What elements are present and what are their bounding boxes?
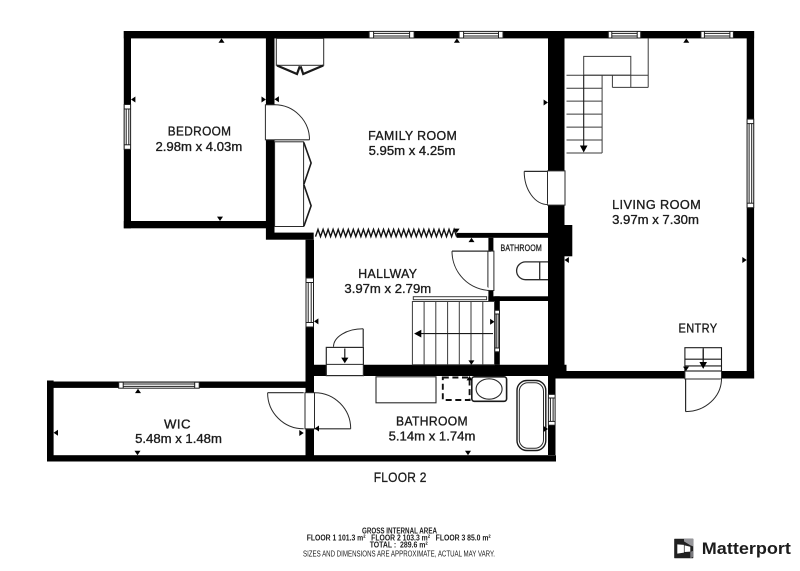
svg-text:TOTAL : 289.6 m²: TOTAL : 289.6 m² — [370, 541, 428, 550]
svg-text:ENTRY: ENTRY — [679, 321, 718, 336]
svg-text:3.97m x 7.30m: 3.97m x 7.30m — [612, 212, 699, 227]
svg-text:3.97m x 2.79m: 3.97m x 2.79m — [344, 281, 431, 296]
svg-text:BEDROOM: BEDROOM — [168, 124, 232, 139]
svg-text:5.14m x 1.74m: 5.14m x 1.74m — [389, 429, 476, 444]
svg-text:FLOOR 2: FLOOR 2 — [374, 469, 427, 485]
svg-text:2.98m x 4.03m: 2.98m x 4.03m — [155, 139, 242, 154]
svg-text:Matterport: Matterport — [702, 540, 792, 558]
svg-text:LIVING ROOM: LIVING ROOM — [612, 197, 701, 212]
svg-text:BATHROOM: BATHROOM — [396, 413, 468, 428]
svg-text:5.95m x 4.25m: 5.95m x 4.25m — [369, 143, 456, 158]
svg-text:FAMILY ROOM: FAMILY ROOM — [368, 128, 457, 143]
svg-text:BATHROOM: BATHROOM — [501, 243, 542, 253]
svg-text:WIC: WIC — [164, 417, 191, 432]
svg-text:SIZES AND DIMENSIONS ARE APPRO: SIZES AND DIMENSIONS ARE APPROXIMATE, AC… — [303, 549, 495, 558]
svg-text:HALLWAY: HALLWAY — [358, 266, 417, 281]
svg-text:5.48m x 1.48m: 5.48m x 1.48m — [135, 431, 222, 446]
